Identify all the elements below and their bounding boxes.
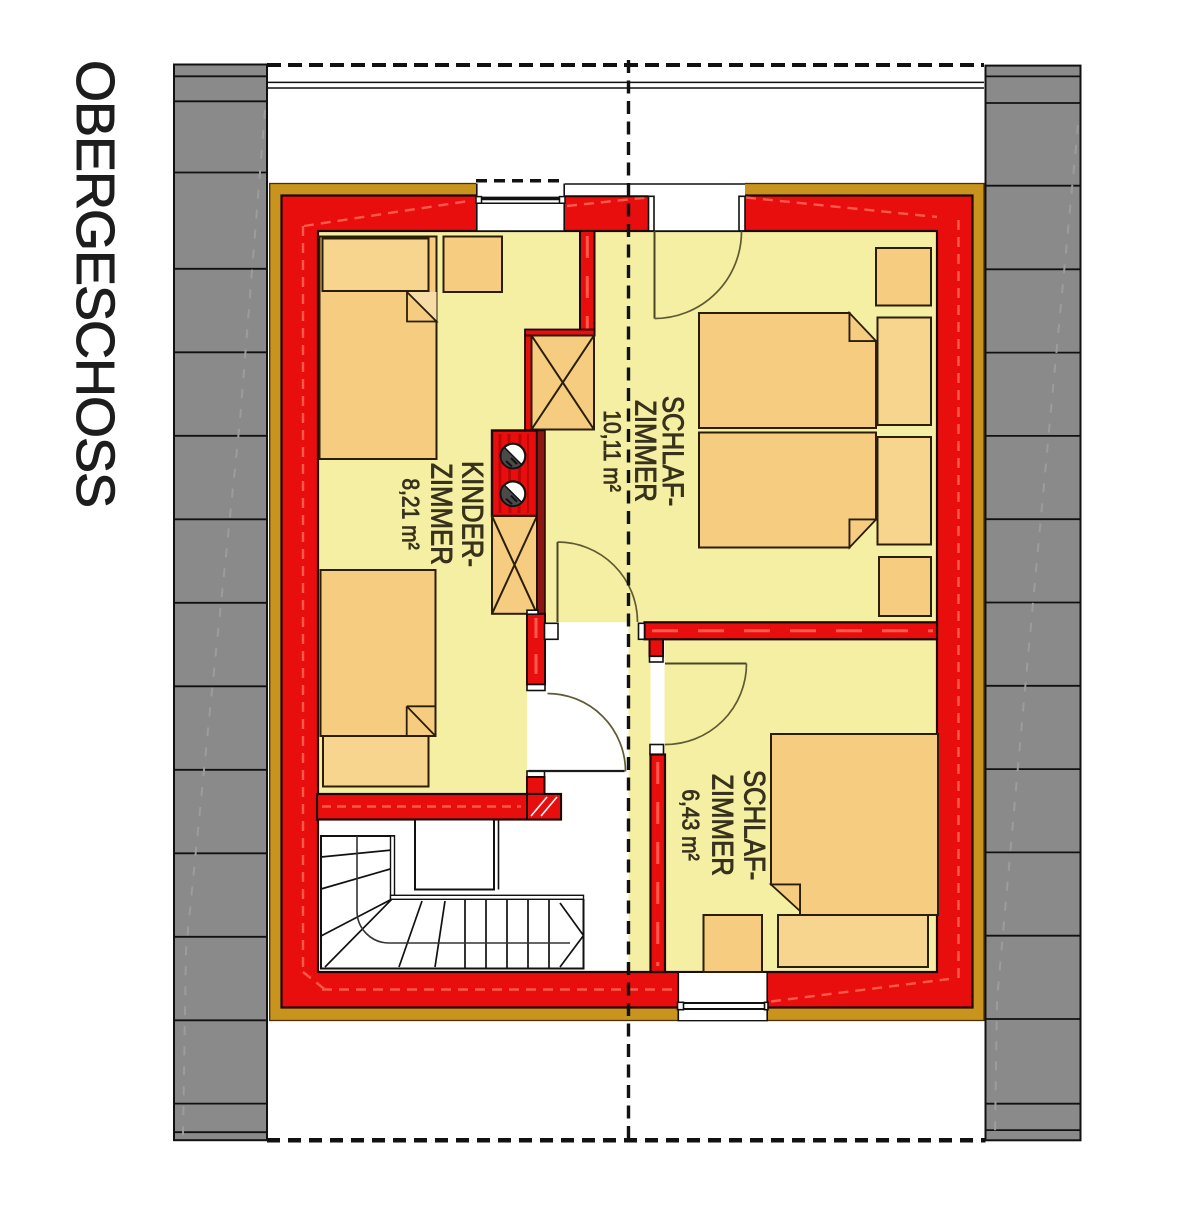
svg-text:OBERGESCHOSS: OBERGESCHOSS <box>65 60 125 507</box>
svg-text:SCHLAF-: SCHLAF- <box>738 770 771 880</box>
svg-text:ZIMMER: ZIMMER <box>425 463 458 565</box>
svg-text:6,43 m²: 6,43 m² <box>677 789 705 861</box>
svg-text:ZIMMER: ZIMMER <box>629 400 662 502</box>
svg-text:KINDER-: KINDER- <box>456 461 489 567</box>
svg-text:10,11 m²: 10,11 m² <box>599 410 627 492</box>
svg-text:8,21 m²: 8,21 m² <box>397 478 425 550</box>
svg-text:ZIMMER: ZIMMER <box>706 774 739 876</box>
